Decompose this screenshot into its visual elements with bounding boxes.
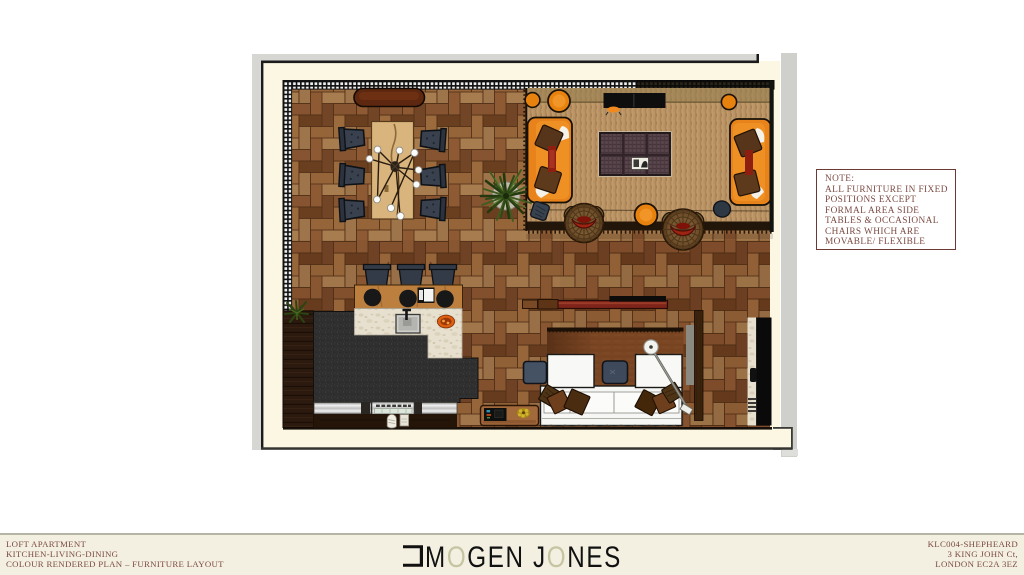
svg-text:MOGEN JONES: MOGEN JONES	[425, 541, 622, 571]
